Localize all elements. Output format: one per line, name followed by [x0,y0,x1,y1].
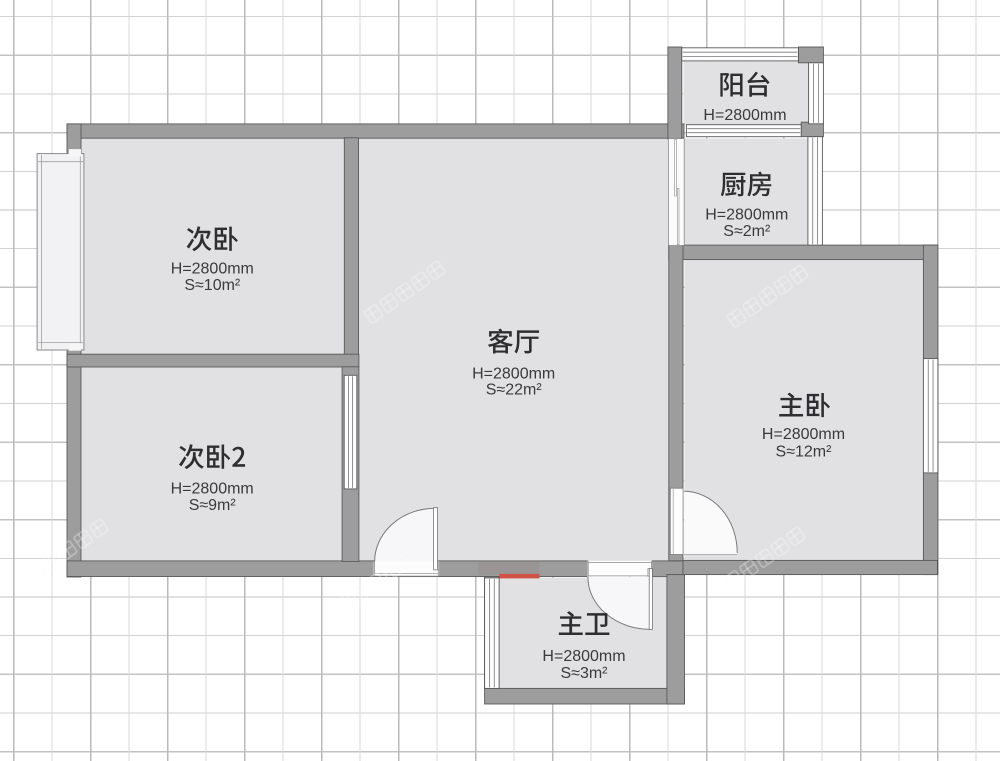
svg-text:H=2800mm: H=2800mm [542,648,625,665]
svg-text:S≈9m²: S≈9m² [189,497,237,514]
svg-text:S≈12m²: S≈12m² [776,443,833,460]
svg-text:S≈22m²: S≈22m² [486,382,543,399]
svg-text:S≈2m²: S≈2m² [723,223,771,240]
svg-text:S≈10m²: S≈10m² [184,277,241,294]
svg-text:H=2800mm: H=2800mm [762,426,845,443]
svg-text:H=2800mm: H=2800mm [705,207,788,224]
svg-text:H=2800mm: H=2800mm [171,481,254,498]
svg-text:H=2800mm: H=2800mm [171,261,254,278]
svg-text:S≈3m²: S≈3m² [560,665,608,682]
svg-text:H=2800mm: H=2800mm [472,365,555,382]
svg-text:H=2800mm: H=2800mm [703,107,786,124]
